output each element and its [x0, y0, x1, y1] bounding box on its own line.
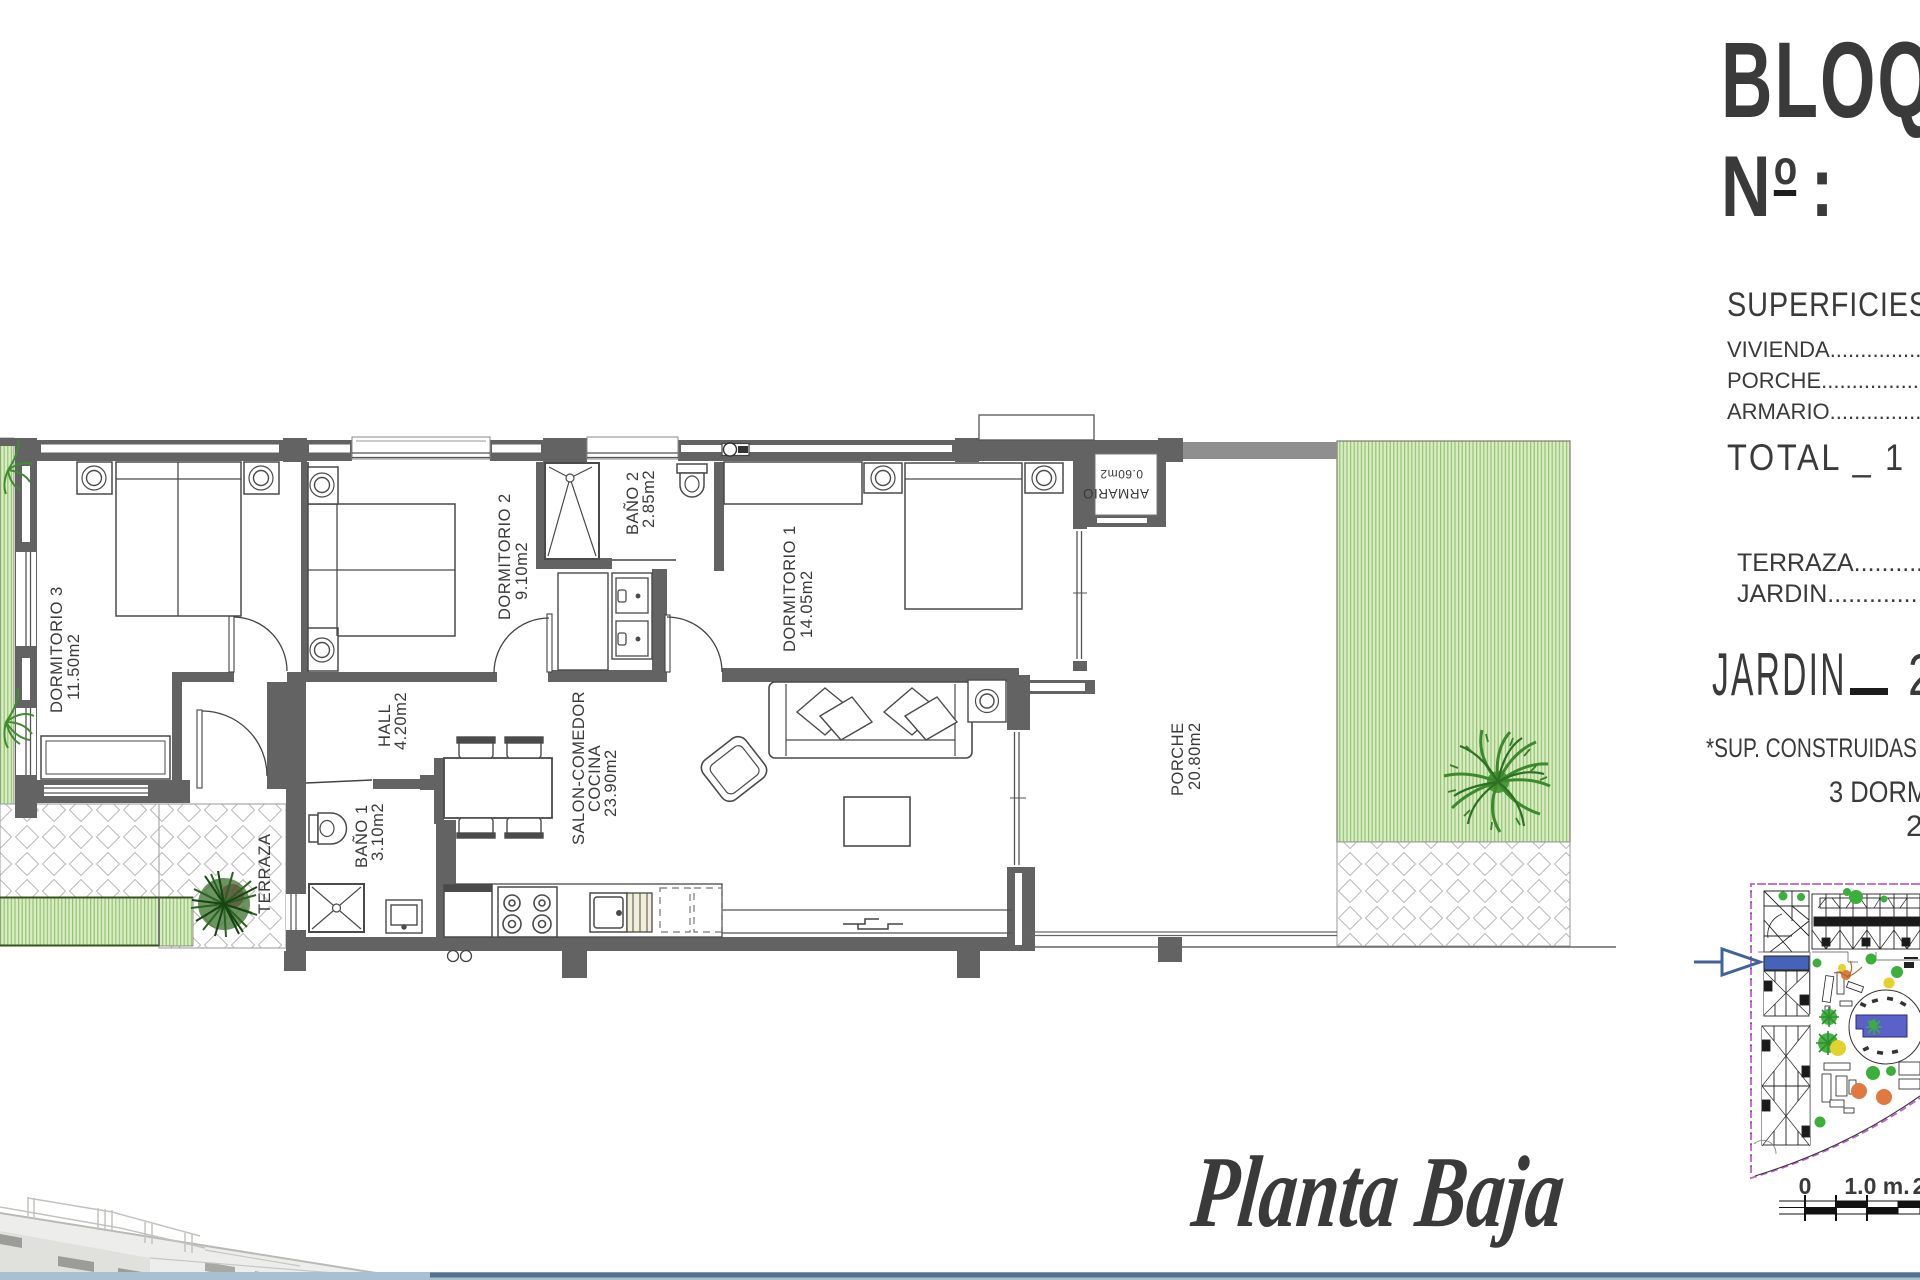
svg-text:Planta Baja: Planta Baja: [1186, 1137, 1570, 1249]
svg-text:BAÑO 2: BAÑO 2: [622, 471, 642, 535]
svg-text:2: 2: [1906, 810, 1920, 843]
svg-text:BAÑO 1: BAÑO 1: [351, 804, 371, 868]
svg-text:PORCHE........................: PORCHE........................: [1727, 368, 1920, 393]
svg-text:TOTAL _ 1: TOTAL _ 1: [1727, 437, 1906, 478]
svg-text:20.80m2: 20.80m2: [1186, 722, 1204, 790]
svg-text:2: 2: [1913, 1173, 1920, 1199]
svg-text:TERRAZA: TERRAZA: [256, 833, 274, 914]
svg-text:o: o: [1774, 142, 1797, 195]
svg-text:11.50m2: 11.50m2: [65, 634, 83, 701]
svg-text::: :: [1811, 139, 1834, 235]
svg-text:TERRAZA.................: TERRAZA.................: [1737, 549, 1920, 577]
svg-text:DORMITORIO 1: DORMITORIO 1: [781, 525, 799, 652]
svg-text:JARDIN.....................: JARDIN.....................: [1737, 580, 1920, 608]
svg-text:DORMITORIO 3: DORMITORIO 3: [48, 586, 66, 713]
svg-text:3 DORM: 3 DORM: [1829, 775, 1920, 808]
svg-text:BLOQU: BLOQU: [1721, 20, 1920, 140]
svg-text:1.0 m.: 1.0 m.: [1844, 1173, 1909, 1199]
svg-text:4.20m2: 4.20m2: [392, 692, 410, 750]
svg-text:14.05m2: 14.05m2: [798, 570, 816, 638]
svg-text:2: 2: [1908, 643, 1920, 708]
svg-text:N: N: [1721, 139, 1771, 235]
svg-text:23.90m2: 23.90m2: [602, 749, 620, 817]
svg-text:VIVIENDA......................: VIVIENDA......................: [1727, 337, 1920, 362]
svg-text:SUPERFICIES: SUPERFICIES: [1727, 285, 1920, 324]
svg-text:PORCHE: PORCHE: [1169, 722, 1187, 796]
svg-text:JARDIN: JARDIN: [1712, 642, 1847, 709]
svg-text:ARMARIO......................: ARMARIO......................: [1727, 399, 1920, 424]
svg-text:3.10m2: 3.10m2: [369, 803, 387, 861]
svg-text:0.60m2: 0.60m2: [1100, 467, 1143, 481]
svg-text:DORMITORIO 2: DORMITORIO 2: [496, 493, 514, 620]
svg-text:9.10m2: 9.10m2: [513, 542, 531, 600]
svg-text:ARMARIO: ARMARIO: [1082, 486, 1149, 501]
svg-text:*SUP. CONSTRUIDAS: *SUP. CONSTRUIDAS: [1706, 733, 1917, 763]
svg-text:2.85m2: 2.85m2: [640, 470, 658, 528]
